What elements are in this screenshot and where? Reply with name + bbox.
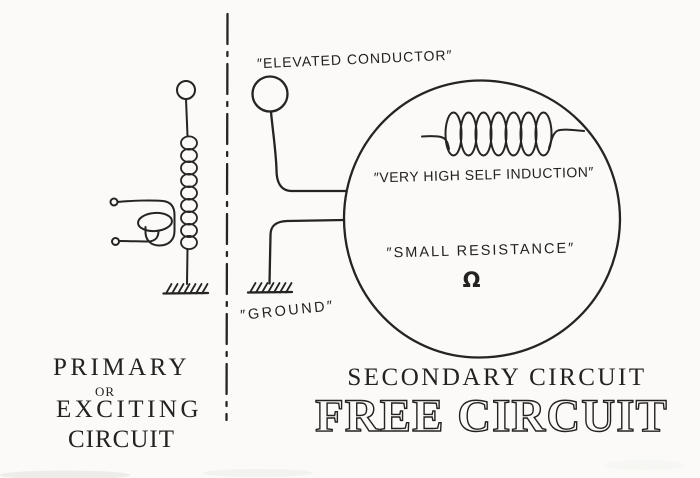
primary-caption-line4: CIRCUIT	[68, 426, 175, 453]
inductor-turn	[446, 113, 462, 156]
scan-smudge	[203, 469, 313, 477]
scan-artifacts	[0, 460, 685, 478]
coil-turn	[181, 174, 197, 187]
inductor-turn	[521, 113, 537, 156]
inductor-turn	[506, 113, 522, 156]
primary-circuit-drawing	[111, 81, 209, 294]
section-divider-dashdot-line	[227, 14, 228, 420]
coil-turn	[181, 149, 197, 162]
inductor-turn	[461, 113, 477, 156]
primary-loop-inner-wire	[119, 231, 159, 242]
primary-caption-line1: PRIMARY	[53, 354, 190, 381]
ohm-symbol: Ω	[463, 268, 481, 292]
elevated-conductor-label: ″ELEVATED CONDUCTOR″	[257, 47, 453, 72]
tesla-free-circuit-diagram: PRIMARY or EXCITING CIRCUIT ″ELEVATED CO…	[0, 0, 700, 478]
coil-turn	[181, 199, 197, 212]
coil-turn	[181, 211, 197, 224]
scanned-diagram-page: PRIMARY or EXCITING CIRCUIT ″ELEVATED CO…	[0, 0, 700, 478]
inductor-right-lead	[549, 130, 584, 148]
primary-caption-line3: EXCITING	[56, 396, 202, 423]
free-circuit-boundary-circle	[344, 80, 620, 357]
secondary-caption-line1: SECONDARY CIRCUIT	[347, 364, 646, 391]
vertical-coil-icon	[181, 136, 197, 249]
primary-loop-outer-wire	[118, 200, 175, 245]
conductor-to-circuit-wire	[271, 112, 346, 191]
secondary-caption: SECONDARY CIRCUIT FREE CIRCUIT	[315, 364, 668, 442]
primary-caption: PRIMARY or EXCITING CIRCUIT	[53, 354, 202, 453]
coil-turn	[181, 136, 197, 149]
inductor-turn	[476, 113, 492, 156]
terminal-dot	[112, 238, 119, 245]
coil-ground-wire	[187, 249, 188, 284]
inductor-turn	[536, 113, 552, 156]
self-induction-label: ″VERY HIGH SELF INDUCTION″	[374, 164, 594, 186]
scan-smudge	[605, 460, 685, 470]
circuit-to-ground-wire	[270, 220, 345, 284]
coil-turn	[181, 161, 197, 174]
inductor-turn	[491, 113, 507, 156]
elevated-conductor-sphere-icon	[253, 77, 288, 112]
ball-terminal-icon	[177, 81, 195, 99]
ground-label: ″GROUND″	[240, 298, 336, 324]
coil-turn	[181, 186, 197, 199]
inductor-coil-icon	[422, 113, 584, 156]
primary-loop-turn	[137, 212, 172, 232]
ground-symbol-icon	[164, 284, 209, 294]
terminal-dot	[111, 199, 118, 206]
secondary-circuit-drawing: ″ELEVATED CONDUCTOR″ ″GROUND″ ″VER	[240, 47, 620, 358]
free-circuit-title: FREE CIRCUIT	[315, 390, 668, 442]
scan-smudge	[0, 471, 130, 478]
primary-loop-icon	[111, 199, 175, 246]
small-resistance-label: ″SMALL RESISTANCE″	[386, 241, 575, 262]
terminal-stem-wire	[186, 99, 188, 136]
